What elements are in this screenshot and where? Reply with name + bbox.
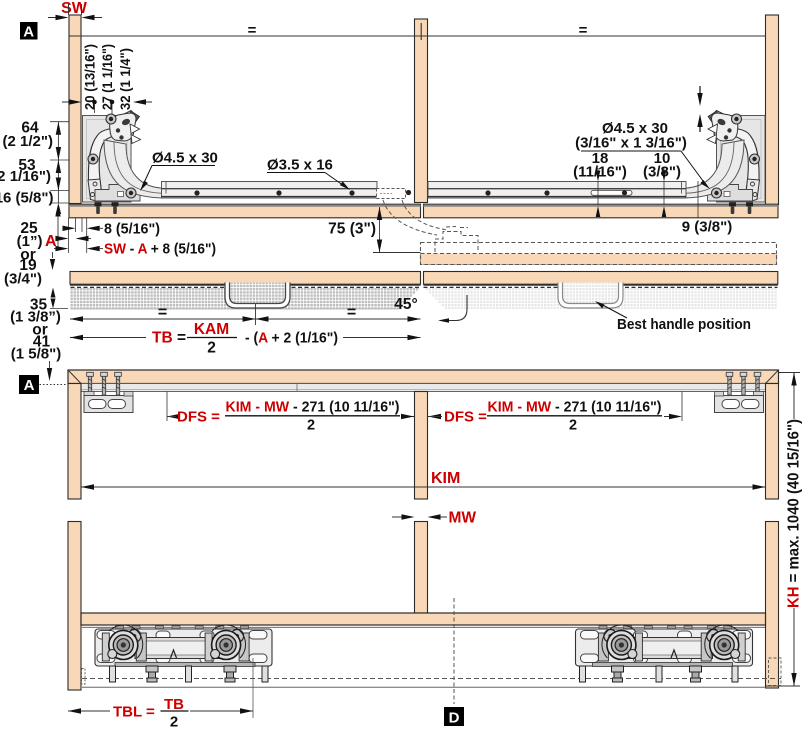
svg-text:TBL =: TBL =: [113, 704, 155, 721]
svg-text:Ø4.5 x 30: Ø4.5 x 30: [152, 150, 218, 167]
svg-text:(3/8"): (3/8"): [643, 164, 681, 181]
svg-text:2: 2: [207, 340, 216, 357]
svg-text:(1 5/8"): (1 5/8"): [11, 346, 61, 363]
svg-text:Ø3.5 x 16: Ø3.5 x 16: [267, 157, 333, 174]
svg-text:8 (5/16"): 8 (5/16"): [104, 222, 160, 238]
svg-text:(3/16" x 1 3/16"): (3/16" x 1 3/16"): [575, 135, 687, 152]
svg-text:SW - A + 8 (5/16"): SW - A + 8 (5/16"): [104, 242, 216, 258]
svg-text:(3/4"): (3/4"): [4, 271, 42, 288]
svg-text:A: A: [45, 233, 57, 250]
svg-text:A: A: [23, 24, 34, 41]
svg-text:45°: 45°: [394, 296, 417, 313]
svg-text:KIM - MW - 271 (10 11/16"): KIM - MW - 271 (10 11/16"): [226, 400, 400, 416]
svg-text:=: =: [579, 22, 588, 39]
svg-text:=: =: [158, 304, 167, 321]
svg-text:2: 2: [569, 418, 577, 434]
svg-text:KIM: KIM: [431, 470, 460, 487]
svg-text:A: A: [24, 377, 35, 394]
svg-text:MW: MW: [449, 510, 477, 527]
svg-text:=: =: [248, 22, 257, 39]
svg-text:Best handle position: Best handle position: [617, 317, 751, 333]
svg-text:2: 2: [170, 714, 178, 730]
svg-text:D: D: [449, 710, 460, 727]
svg-text:2: 2: [307, 418, 315, 434]
svg-text:- (A + 2 (1/16"): - (A + 2 (1/16"): [245, 330, 338, 347]
svg-text:KH = max. 1040 (40 15/16"): KH = max. 1040 (40 15/16"): [786, 419, 802, 608]
svg-text:(2 1/2"): (2 1/2"): [3, 133, 53, 150]
svg-text:(11/16"): (11/16"): [573, 164, 627, 181]
svg-text:32 (1 1/4"): 32 (1 1/4"): [118, 48, 133, 110]
svg-text:KIM - MW - 271 (10 11/16"): KIM - MW - 271 (10 11/16"): [488, 400, 662, 416]
svg-text:(2 1/16"): (2 1/16"): [0, 168, 51, 185]
svg-text:9 (3/8"): 9 (3/8"): [682, 219, 732, 236]
svg-text:DFS =: DFS =: [177, 409, 220, 426]
svg-text:16 (5/8"): 16 (5/8"): [0, 190, 54, 207]
svg-text:DFS =: DFS =: [444, 409, 487, 426]
svg-text:75 (3"): 75 (3"): [328, 221, 376, 238]
svg-text:TB =: TB =: [152, 330, 186, 347]
svg-text:=: =: [347, 304, 356, 321]
svg-text:KAM: KAM: [194, 321, 229, 338]
